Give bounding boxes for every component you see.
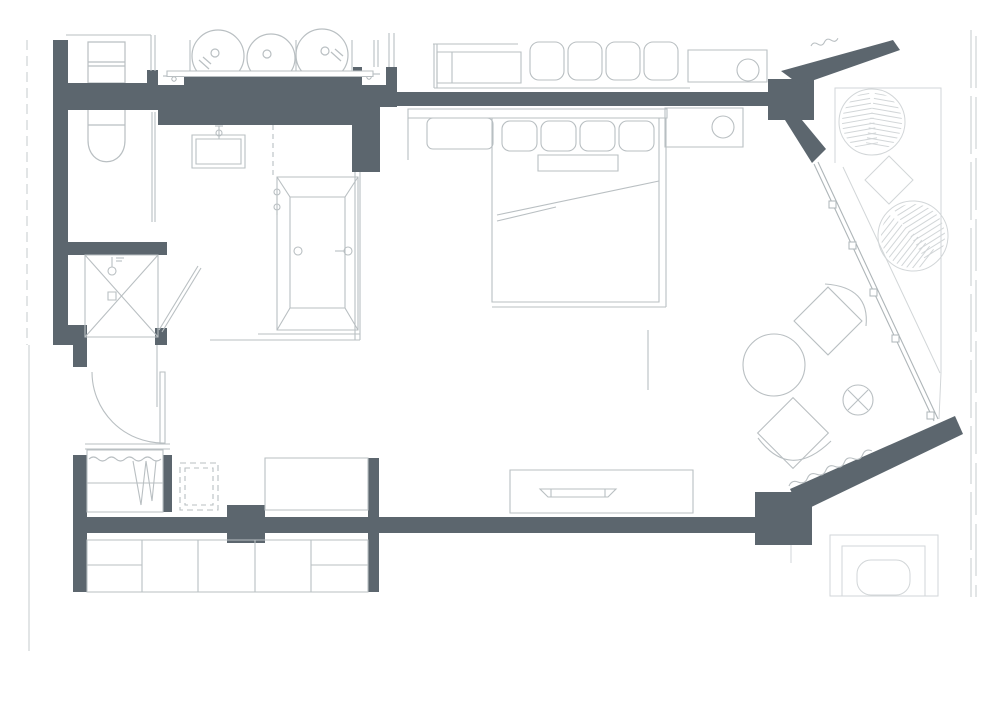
wall-mid-stub <box>368 458 379 592</box>
vanity-counter <box>167 71 373 77</box>
wall-tub-side <box>352 107 380 172</box>
wall-shower-sw <box>53 325 87 345</box>
mullion-icon <box>870 289 877 296</box>
wall-shower-north <box>53 242 167 255</box>
mullion-icon <box>927 412 934 419</box>
floor-plan-page <box>0 0 1000 702</box>
shower-drain-icon <box>108 292 116 300</box>
wall-bath-north-a <box>158 85 353 125</box>
mullion-icon <box>849 242 856 249</box>
wall-step <box>147 70 158 110</box>
wall-bath-north-b <box>184 77 353 87</box>
wall-bed-north <box>395 92 770 106</box>
wall-entry-column <box>73 345 87 367</box>
wall-closet-stub <box>163 455 172 512</box>
wall-ne-junction <box>768 79 814 120</box>
wall-south <box>73 517 755 533</box>
mullion-icon <box>829 201 836 208</box>
mullion-icon <box>892 335 899 342</box>
wall-wc-north <box>53 83 147 110</box>
floor-plan-canvas <box>0 0 1000 702</box>
wall-south-pillar <box>227 505 265 543</box>
